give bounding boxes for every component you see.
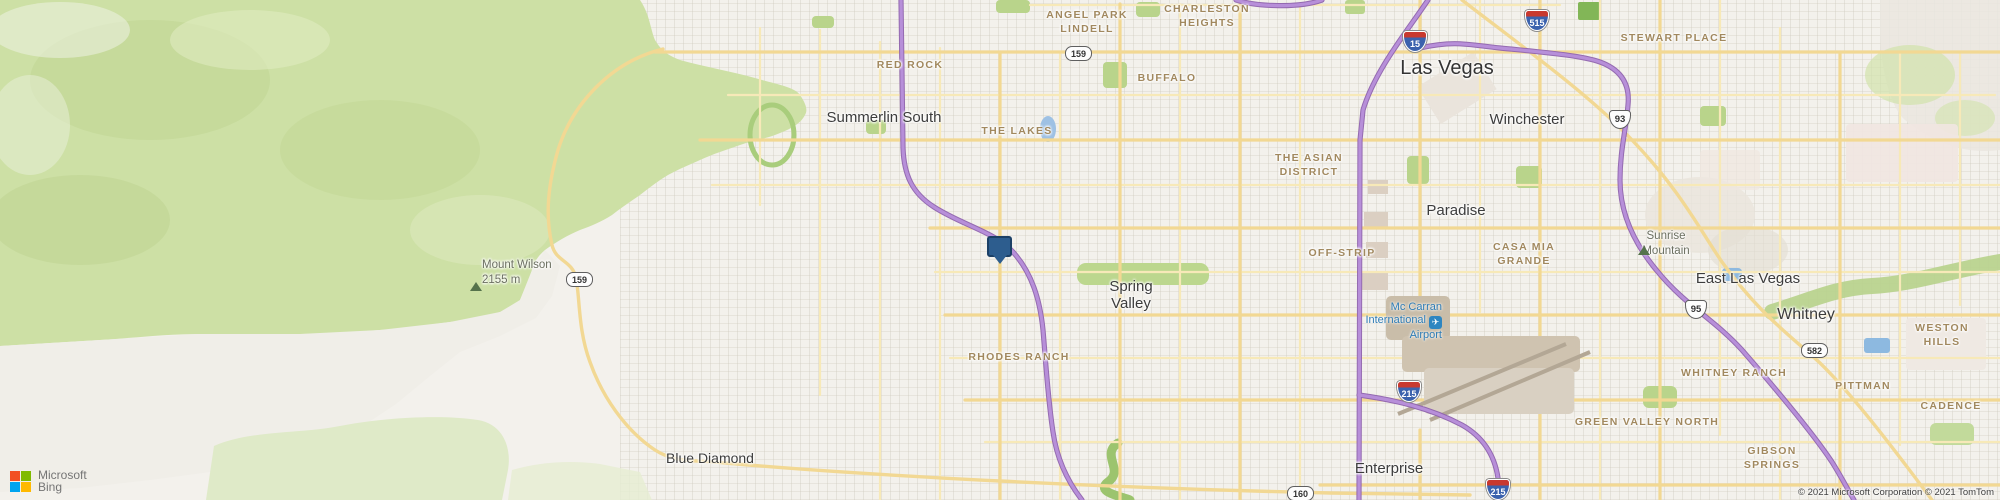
location-marker[interactable] [987,236,1012,257]
microsoft-logo-icon [10,471,31,492]
bing-logo[interactable]: Microsoft Bing [10,469,87,494]
logo-product-text: Bing [38,481,87,494]
parks-and-water [750,0,1986,500]
map-viewport[interactable]: 159 159 582 160 15 515 215 215 93 95 Las… [0,0,2000,500]
map-copyright: © 2021 Microsoft Corporation © 2021 TomT… [1798,487,1994,498]
